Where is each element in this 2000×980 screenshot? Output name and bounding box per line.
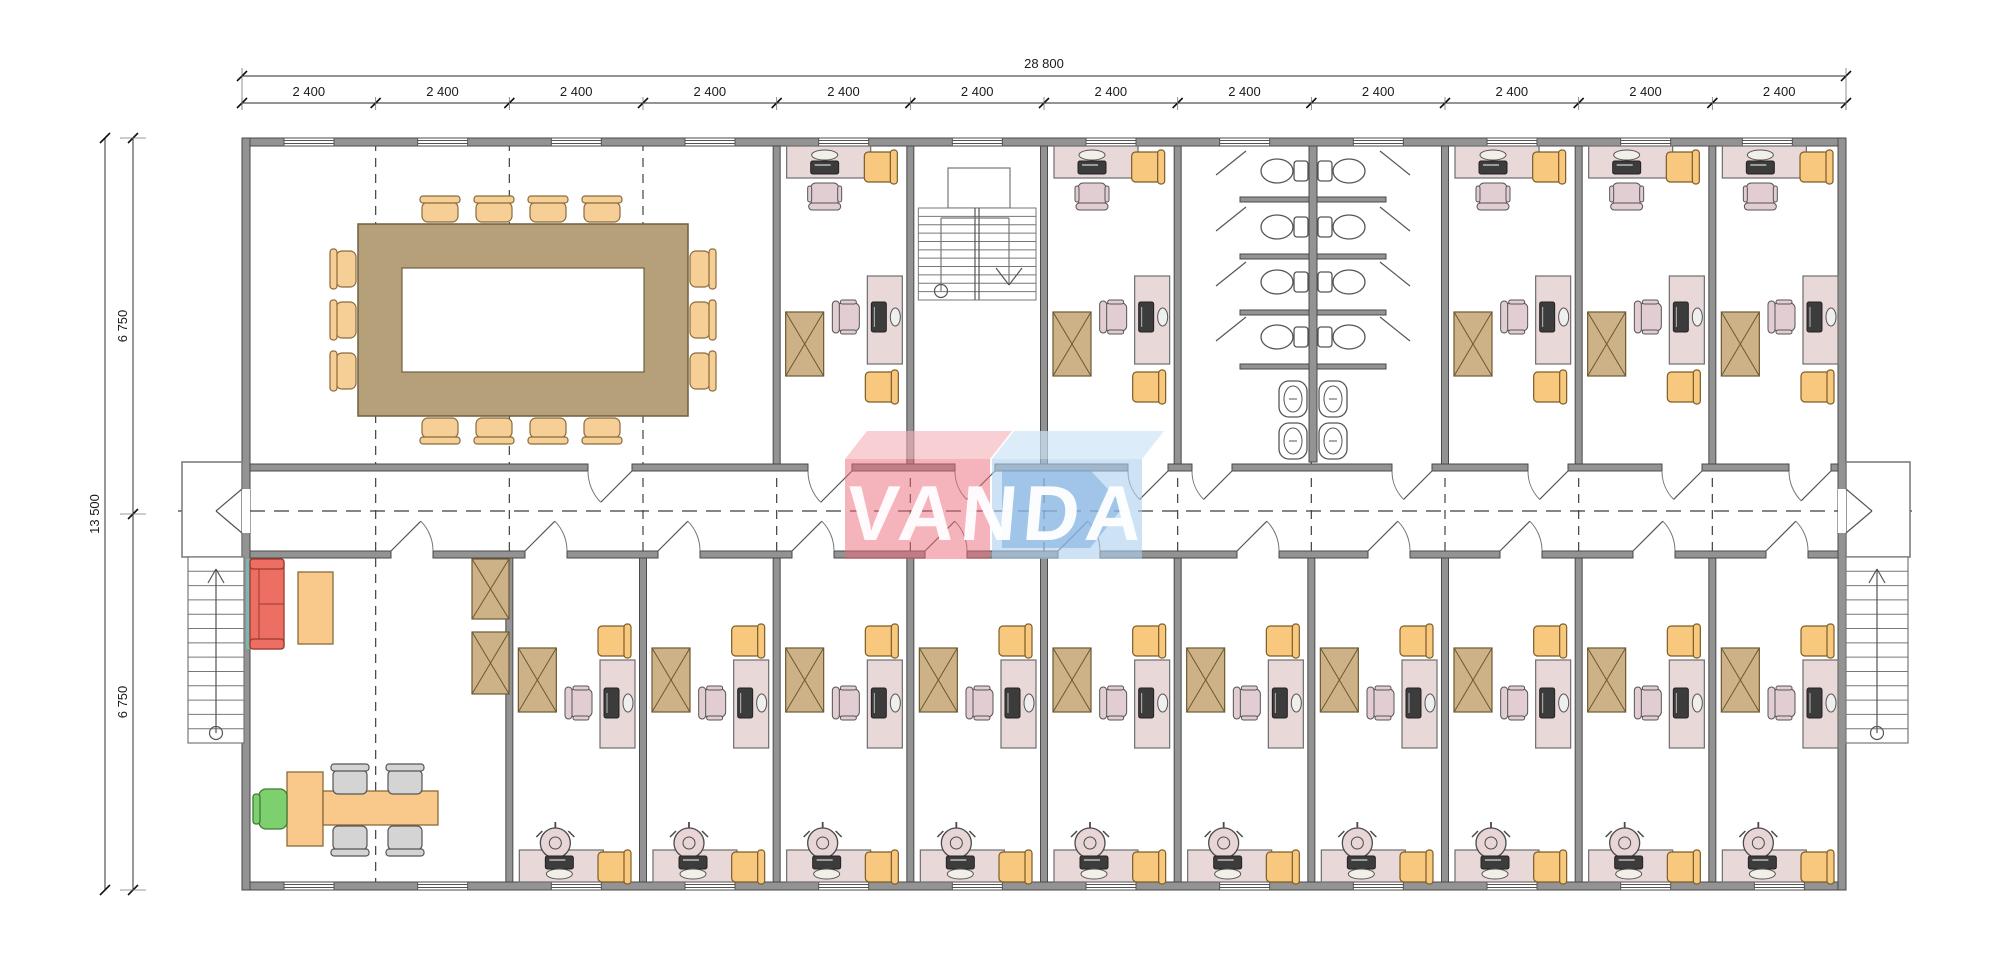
window bbox=[1742, 138, 1792, 146]
stall-door bbox=[1216, 207, 1246, 231]
office-top bbox=[1053, 146, 1170, 404]
door bbox=[1766, 521, 1808, 551]
wardrobe bbox=[919, 648, 957, 712]
window bbox=[819, 882, 869, 890]
door bbox=[1392, 471, 1432, 499]
tray bbox=[814, 869, 840, 879]
toilet bbox=[1318, 270, 1365, 294]
stairwell bbox=[918, 168, 1036, 300]
tray bbox=[1079, 150, 1105, 160]
window bbox=[819, 138, 869, 146]
toilet bbox=[1261, 270, 1308, 294]
window bbox=[1086, 882, 1136, 890]
conference-table bbox=[358, 224, 688, 416]
office-chair bbox=[1075, 183, 1109, 210]
meeting-chair bbox=[690, 249, 716, 289]
svg-text:2 400: 2 400 bbox=[1763, 84, 1796, 99]
window bbox=[1220, 138, 1270, 146]
sink bbox=[1279, 381, 1307, 417]
wardrobe bbox=[472, 559, 509, 619]
visitor-chair bbox=[1800, 150, 1833, 184]
door bbox=[1789, 471, 1831, 501]
meeting-chair bbox=[528, 196, 568, 222]
tray bbox=[1749, 869, 1775, 879]
office-bottom bbox=[1588, 624, 1705, 884]
window bbox=[1621, 882, 1671, 890]
door bbox=[1368, 521, 1410, 551]
window bbox=[1487, 138, 1537, 146]
visitor-chair bbox=[1133, 624, 1166, 658]
svg-text:2 400: 2 400 bbox=[827, 84, 860, 99]
tray bbox=[1614, 150, 1640, 160]
printer bbox=[1080, 856, 1108, 869]
tray bbox=[680, 869, 706, 879]
office-bottom bbox=[518, 624, 635, 884]
stall-door bbox=[1380, 317, 1410, 341]
meeting-chair bbox=[690, 351, 716, 391]
meeting-chair bbox=[690, 300, 716, 340]
door bbox=[391, 521, 433, 551]
visitor-chair bbox=[732, 624, 765, 658]
window bbox=[952, 882, 1002, 890]
toilet bbox=[1261, 325, 1308, 349]
office-bottom bbox=[1721, 624, 1838, 884]
stall-door bbox=[1380, 262, 1410, 286]
sofa bbox=[250, 559, 284, 649]
svg-text:13 500: 13 500 bbox=[87, 494, 102, 534]
guest-chair bbox=[386, 826, 424, 856]
entrance-porch bbox=[182, 462, 242, 557]
coffee-table bbox=[298, 572, 333, 644]
window bbox=[1621, 138, 1671, 146]
printer bbox=[813, 856, 841, 869]
svg-text:2 400: 2 400 bbox=[1362, 84, 1395, 99]
dim-left-total: 13 500 bbox=[87, 133, 110, 895]
svg-text:2 400: 2 400 bbox=[1095, 84, 1128, 99]
visitor-chair bbox=[999, 624, 1032, 658]
visitor-chair bbox=[1534, 370, 1567, 404]
office-chair bbox=[808, 183, 842, 210]
visitor-chair bbox=[865, 370, 898, 404]
office-chair bbox=[1634, 300, 1661, 334]
green-chair bbox=[253, 789, 287, 829]
logo-text: VANDA bbox=[843, 469, 1152, 557]
door bbox=[1633, 521, 1675, 551]
meeting-chair bbox=[582, 196, 622, 222]
office-chair bbox=[565, 686, 592, 720]
wardrobe bbox=[786, 648, 824, 712]
visitor-chair bbox=[865, 850, 898, 884]
office-bottom bbox=[1053, 624, 1170, 884]
office-chair bbox=[1768, 686, 1795, 720]
dim-top-segments: 2 4002 4002 4002 4002 4002 4002 4002 400… bbox=[237, 84, 1851, 110]
meeting-chair bbox=[474, 196, 514, 222]
wardrobe bbox=[1454, 312, 1492, 376]
door bbox=[588, 471, 632, 502]
tray bbox=[1616, 869, 1642, 879]
office-bottom bbox=[786, 624, 903, 884]
office-top bbox=[1454, 146, 1571, 404]
wardrobe bbox=[1588, 648, 1626, 712]
visitor-chair bbox=[1133, 370, 1166, 404]
toilet bbox=[1318, 159, 1365, 183]
visitor-chair bbox=[1667, 850, 1700, 884]
wardrobe bbox=[786, 312, 824, 376]
toilet bbox=[1261, 215, 1308, 239]
window bbox=[284, 882, 334, 890]
office-chair bbox=[966, 686, 993, 720]
meeting-chair bbox=[330, 300, 356, 340]
tray bbox=[1747, 150, 1773, 160]
office-chair bbox=[1233, 686, 1260, 720]
wardrobe bbox=[1053, 648, 1091, 712]
window bbox=[1086, 138, 1136, 146]
office-chair bbox=[1501, 300, 1528, 334]
door bbox=[1500, 521, 1542, 551]
svg-text:2 400: 2 400 bbox=[1496, 84, 1529, 99]
office-chair bbox=[1610, 183, 1644, 210]
wardrobe bbox=[1721, 648, 1759, 712]
svg-text:28 800: 28 800 bbox=[1024, 56, 1064, 71]
visitor-chair bbox=[1533, 150, 1566, 184]
visitor-chair bbox=[1667, 370, 1700, 404]
dim-left-segments: 6 7506 750 bbox=[115, 133, 146, 895]
wardrobe bbox=[1320, 648, 1358, 712]
office-top bbox=[786, 146, 903, 404]
printer bbox=[811, 161, 839, 174]
visitor-chair bbox=[1801, 850, 1834, 884]
visitor-chair bbox=[1400, 624, 1433, 658]
meeting-chair bbox=[528, 418, 568, 444]
wardrobe bbox=[472, 632, 509, 694]
svg-text:2 400: 2 400 bbox=[694, 84, 727, 99]
visitor-chair bbox=[1534, 624, 1567, 658]
printer bbox=[1347, 856, 1375, 869]
door bbox=[1528, 471, 1568, 499]
office-chair bbox=[832, 686, 859, 720]
guest-chair bbox=[331, 826, 369, 856]
meeting-chair bbox=[420, 196, 460, 222]
window bbox=[418, 138, 468, 146]
door bbox=[1662, 471, 1702, 499]
stall-door bbox=[1380, 151, 1410, 175]
office-chair bbox=[1476, 183, 1510, 210]
tray bbox=[1482, 869, 1508, 879]
tray bbox=[1348, 869, 1374, 879]
printer bbox=[1479, 161, 1507, 174]
door bbox=[1192, 471, 1232, 499]
stall-door bbox=[1216, 317, 1246, 341]
office-chair bbox=[1501, 686, 1528, 720]
visitor-chair bbox=[1801, 624, 1834, 658]
wardrobe bbox=[1053, 312, 1091, 376]
printer bbox=[1214, 856, 1242, 869]
office-top bbox=[1588, 146, 1705, 404]
office-chair bbox=[1367, 686, 1394, 720]
office-chair bbox=[1100, 300, 1127, 334]
vanda-logo: VANDA bbox=[843, 431, 1164, 559]
stall-door bbox=[1216, 151, 1246, 175]
visitor-chair bbox=[1667, 624, 1700, 658]
visitor-chair bbox=[1266, 624, 1299, 658]
svg-text:6 750: 6 750 bbox=[115, 310, 130, 343]
meeting-chair bbox=[330, 249, 356, 289]
tray bbox=[1081, 869, 1107, 879]
meeting-chair bbox=[474, 418, 514, 444]
office-bottom bbox=[652, 624, 769, 884]
visitor-chair bbox=[864, 150, 897, 184]
tray bbox=[812, 150, 838, 160]
entrance-porch bbox=[1846, 462, 1910, 557]
svg-text:VANDA: VANDA bbox=[843, 469, 1152, 557]
guest-chair bbox=[386, 764, 424, 794]
tray bbox=[1480, 150, 1506, 160]
visitor-chair bbox=[598, 850, 631, 884]
toilet bbox=[1318, 325, 1365, 349]
stall-door bbox=[1380, 207, 1410, 231]
svg-text:2 400: 2 400 bbox=[293, 84, 326, 99]
visitor-chair bbox=[999, 850, 1032, 884]
svg-text:6 750: 6 750 bbox=[115, 686, 130, 719]
svg-text:2 400: 2 400 bbox=[560, 84, 593, 99]
door bbox=[658, 521, 700, 551]
svg-text:2 400: 2 400 bbox=[1629, 84, 1662, 99]
meeting-chair bbox=[330, 351, 356, 391]
window bbox=[1353, 138, 1403, 146]
window bbox=[1754, 882, 1804, 890]
wc-walls bbox=[1240, 146, 1386, 462]
wardrobe bbox=[1187, 648, 1225, 712]
open-office bbox=[246, 559, 509, 856]
office-top bbox=[1721, 146, 1838, 404]
window bbox=[952, 138, 1002, 146]
visitor-chair bbox=[1666, 150, 1699, 184]
printer bbox=[1746, 161, 1774, 174]
printer bbox=[1748, 856, 1776, 869]
meeting-chair bbox=[582, 418, 622, 444]
office-bottom bbox=[1454, 624, 1571, 884]
visitor-chair bbox=[1801, 370, 1834, 404]
printer bbox=[946, 856, 974, 869]
meeting-chair bbox=[420, 418, 460, 444]
sink bbox=[1319, 423, 1347, 459]
window bbox=[1220, 882, 1270, 890]
svg-text:2 400: 2 400 bbox=[1228, 84, 1261, 99]
window bbox=[685, 138, 735, 146]
guest-chair bbox=[331, 764, 369, 794]
window bbox=[284, 138, 334, 146]
office-chair bbox=[1100, 686, 1127, 720]
visitor-chair bbox=[1266, 850, 1299, 884]
tray bbox=[546, 869, 572, 879]
office-chair bbox=[1743, 183, 1777, 210]
external-stairs bbox=[1846, 557, 1908, 743]
visitor-chair bbox=[865, 624, 898, 658]
wardrobe bbox=[1454, 648, 1492, 712]
printer bbox=[1613, 161, 1641, 174]
printer bbox=[545, 856, 573, 869]
window bbox=[551, 882, 601, 890]
tray bbox=[1215, 869, 1241, 879]
printer bbox=[1078, 161, 1106, 174]
window bbox=[1487, 882, 1537, 890]
wardrobe bbox=[652, 648, 690, 712]
window bbox=[685, 882, 735, 890]
floor-plan-svg: VANDA28 8002 4002 4002 4002 4002 4002 40… bbox=[0, 0, 2000, 980]
door bbox=[792, 521, 834, 551]
stall-door bbox=[1216, 262, 1246, 286]
door bbox=[525, 521, 567, 551]
visitor-chair bbox=[732, 850, 765, 884]
visitor-chair bbox=[1400, 850, 1433, 884]
office-bottom bbox=[1187, 624, 1304, 884]
office-bottom bbox=[919, 624, 1036, 884]
external-stairs bbox=[188, 557, 244, 743]
wardrobe bbox=[1721, 312, 1759, 376]
printer bbox=[1615, 856, 1643, 869]
tray bbox=[947, 869, 973, 879]
window bbox=[418, 882, 468, 890]
sink bbox=[1279, 423, 1307, 459]
meeting-room bbox=[330, 196, 716, 444]
door bbox=[1237, 521, 1279, 551]
visitor-chair bbox=[1534, 850, 1567, 884]
printer bbox=[1481, 856, 1509, 869]
window bbox=[551, 138, 601, 146]
wardrobe bbox=[518, 648, 556, 712]
svg-text:2 400: 2 400 bbox=[961, 84, 994, 99]
toilet bbox=[1261, 159, 1308, 183]
printer bbox=[679, 856, 707, 869]
visitor-chair bbox=[598, 624, 631, 658]
visitor-chair bbox=[1133, 850, 1166, 884]
wardrobe bbox=[1588, 312, 1626, 376]
office-chair bbox=[1768, 300, 1795, 334]
toilet bbox=[1318, 215, 1365, 239]
office-chair bbox=[832, 300, 859, 334]
visitor-chair bbox=[1132, 150, 1165, 184]
office-chair bbox=[699, 686, 726, 720]
sink bbox=[1319, 381, 1347, 417]
office-bottom bbox=[1320, 624, 1437, 884]
window bbox=[1353, 882, 1403, 890]
floor-plan-canvas: VANDA28 8002 4002 4002 4002 4002 4002 40… bbox=[0, 0, 2000, 980]
svg-text:2 400: 2 400 bbox=[426, 84, 459, 99]
office-chair bbox=[1634, 686, 1661, 720]
